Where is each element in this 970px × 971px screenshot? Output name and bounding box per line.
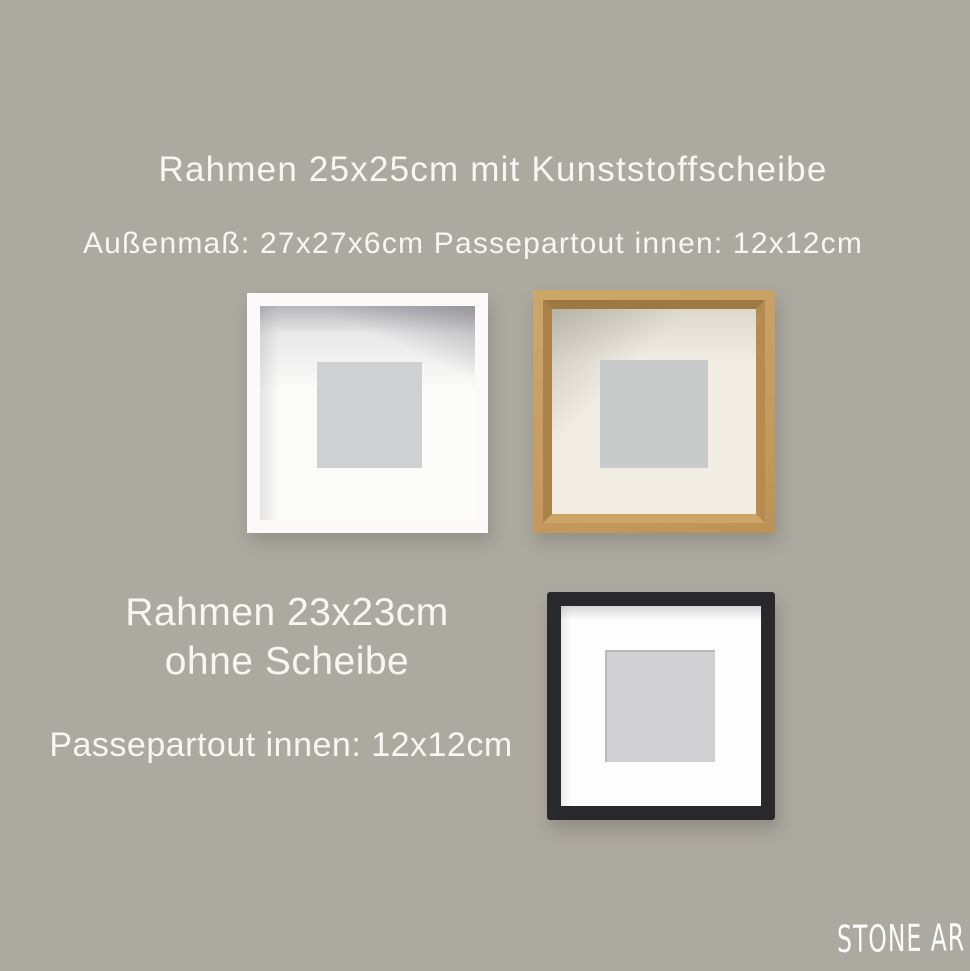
oak-frame-inner-bevel bbox=[543, 300, 765, 523]
bottom-title-line-2: ohne Scheibe bbox=[37, 637, 537, 686]
white-frame-mat bbox=[260, 306, 475, 520]
oak-shadow-box-frame-photo bbox=[533, 290, 775, 533]
top-section-dimensions: Außenmaß: 27x27x6cm Passepartout innen: … bbox=[0, 224, 958, 264]
brand-watermark: STONE AR bbox=[837, 919, 965, 958]
oak-frame-mat bbox=[552, 309, 756, 514]
product-infographic: Rahmen 25x25cm mit Kunststoffscheibe Auß… bbox=[0, 0, 970, 971]
black-frame-mat bbox=[561, 606, 761, 806]
black-frame-opening bbox=[605, 650, 715, 762]
top-section-title: Rahmen 25x25cm mit Kunststoffscheibe bbox=[10, 147, 970, 192]
white-frame-opening bbox=[317, 362, 422, 468]
bottom-section-dimensions: Passepartout innen: 12x12cm bbox=[31, 723, 531, 768]
bottom-title-line-1: Rahmen 23x23cm bbox=[37, 588, 537, 637]
bottom-section-title: Rahmen 23x23cm ohne Scheibe bbox=[37, 588, 537, 686]
black-frame-photo bbox=[547, 592, 775, 820]
oak-frame-opening bbox=[600, 360, 708, 468]
white-shadow-box-frame-photo bbox=[247, 293, 488, 533]
